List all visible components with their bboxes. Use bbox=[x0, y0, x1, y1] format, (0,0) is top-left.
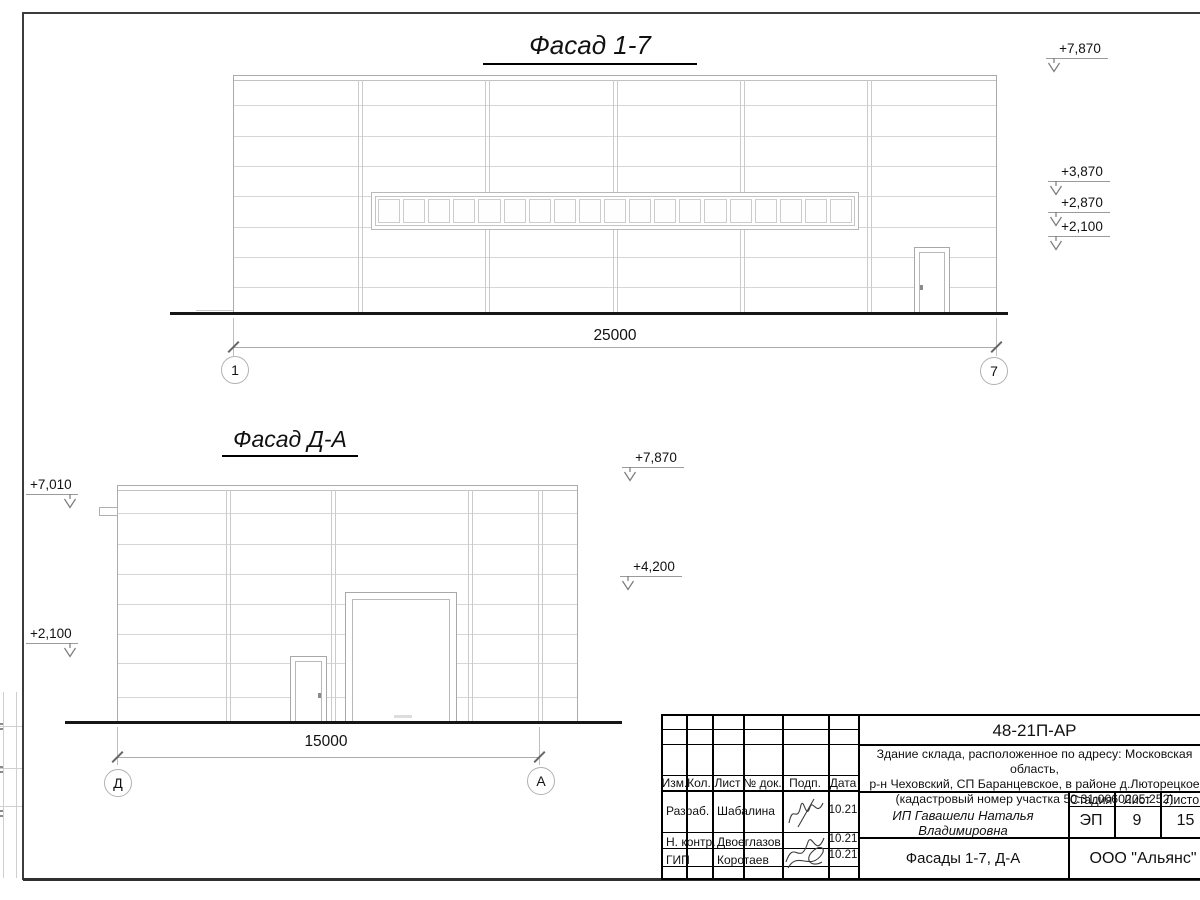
ribbon-window-frame bbox=[375, 196, 855, 226]
row-date: 10.21 bbox=[829, 849, 858, 861]
list-label: Лист bbox=[1123, 793, 1150, 807]
elevation-value: +7,870 bbox=[1046, 41, 1108, 59]
margin-text-stub bbox=[0, 728, 3, 730]
title-block-line bbox=[712, 716, 714, 878]
sheet-number: 9 bbox=[1133, 812, 1142, 830]
axis-bubble-1: 1 bbox=[221, 356, 249, 384]
window-pane bbox=[704, 199, 726, 223]
entrance-door bbox=[290, 656, 327, 722]
row-name: Коротаев bbox=[717, 853, 769, 867]
window-pane bbox=[554, 199, 576, 223]
ribbon-window bbox=[371, 192, 859, 230]
window-pane bbox=[755, 199, 777, 223]
elevation-value: +2,100 bbox=[1048, 219, 1110, 237]
stage-value: ЭП bbox=[1080, 812, 1103, 830]
row-name: Двоеглазов bbox=[717, 835, 781, 849]
extension-line bbox=[117, 727, 118, 765]
elevation-arrow-icon bbox=[63, 494, 77, 509]
gate-leaf bbox=[352, 599, 450, 721]
door-leaf bbox=[919, 252, 945, 312]
col-header-data: Дата bbox=[830, 776, 857, 790]
window-pane bbox=[529, 199, 551, 223]
column-joint bbox=[867, 80, 872, 313]
window-pane bbox=[504, 199, 526, 223]
margin-stamp-divider bbox=[0, 806, 22, 807]
title-block-line bbox=[663, 729, 858, 730]
ground-line bbox=[65, 721, 622, 724]
col-header-ndok: № док. bbox=[743, 776, 781, 790]
listov-label: Листов bbox=[1165, 793, 1200, 807]
elevation-mark: +2,100 bbox=[26, 626, 78, 644]
title-block-line bbox=[663, 744, 858, 745]
elevation-arrow-icon bbox=[63, 643, 77, 658]
extension-line bbox=[233, 318, 234, 356]
title-block: Изм. Кол. Лист № док. Подп. Дата Разраб.… bbox=[661, 714, 1200, 880]
facade-1-7-title: Фасад 1-7 bbox=[483, 30, 697, 65]
client-name: ИП Гавашели Наталья Владимировна bbox=[858, 808, 1068, 838]
window-pane bbox=[629, 199, 651, 223]
facade-1-7-building bbox=[233, 75, 997, 313]
canopy-box bbox=[99, 507, 118, 516]
margin-stamp-line bbox=[3, 692, 4, 878]
column-joint bbox=[358, 80, 363, 313]
elevation-mark: +7,870 bbox=[622, 450, 684, 468]
project-description-line1: Здание склада, расположенное по адресу: … bbox=[858, 747, 1200, 777]
window-pane bbox=[730, 199, 752, 223]
margin-stamp-line bbox=[16, 692, 17, 878]
elevation-mark: +7,010 bbox=[26, 477, 78, 495]
window-pane bbox=[453, 199, 475, 223]
door-handle bbox=[920, 285, 923, 290]
signature-scribble bbox=[784, 795, 827, 831]
axis-bubble-7: 7 bbox=[980, 357, 1008, 385]
doc-number: 48-21П-АР bbox=[858, 721, 1200, 741]
elevation-arrow-icon bbox=[623, 467, 637, 482]
row-date: 10.21 bbox=[829, 804, 858, 816]
elevation-arrow-icon bbox=[1049, 236, 1063, 251]
elevation-value: +2,100 bbox=[26, 626, 78, 644]
window-pane bbox=[830, 199, 852, 223]
elevation-arrow-icon bbox=[1049, 181, 1063, 196]
margin-text-stub bbox=[0, 723, 3, 725]
panel-line bbox=[118, 574, 577, 575]
sheets-total: 15 bbox=[1177, 812, 1195, 830]
gate bbox=[345, 592, 457, 722]
column-joint bbox=[331, 490, 336, 723]
facade-d-a-title: Фасад Д-А bbox=[222, 426, 358, 457]
panel-line bbox=[118, 544, 577, 545]
panel-line bbox=[118, 513, 577, 514]
elevation-mark: +2,100 bbox=[1048, 219, 1110, 237]
frame-top-line bbox=[23, 12, 1200, 14]
title-block-line bbox=[663, 790, 858, 792]
row-role: ГИП bbox=[666, 853, 690, 867]
signature-scribble bbox=[782, 828, 828, 872]
extension-line bbox=[539, 727, 540, 765]
entrance-door bbox=[914, 247, 950, 313]
column-joint bbox=[226, 490, 231, 723]
frame-left-line bbox=[22, 12, 24, 880]
extension-line bbox=[996, 318, 997, 356]
elevation-value: +2,870 bbox=[1048, 195, 1110, 213]
parapet-line bbox=[118, 490, 577, 491]
ground-line bbox=[170, 312, 1008, 315]
column-joint bbox=[538, 490, 543, 723]
door-handle bbox=[318, 693, 321, 698]
elevation-value: +7,010 bbox=[26, 477, 78, 495]
dimension-line bbox=[233, 347, 997, 348]
col-header-list: Лист bbox=[714, 776, 740, 790]
axis-bubble-a: А bbox=[527, 767, 555, 795]
row-name: Шабалина bbox=[717, 804, 775, 818]
window-pane bbox=[478, 199, 500, 223]
column-joint bbox=[468, 490, 473, 723]
col-header-kol: Кол. bbox=[687, 776, 711, 790]
elevation-arrow-icon bbox=[621, 576, 635, 591]
margin-text-stub bbox=[0, 771, 3, 773]
door-leaf bbox=[295, 661, 322, 721]
dimension-label: 15000 bbox=[276, 733, 376, 751]
window-pane bbox=[604, 199, 626, 223]
window-pane bbox=[428, 199, 450, 223]
drawing-sheet: { "facade_1_7": { "title": "Фасад 1-7", … bbox=[0, 0, 1200, 900]
row-date: 10.21 bbox=[829, 833, 858, 845]
col-header-izm: Изм. bbox=[662, 776, 688, 790]
axis-bubble-d: Д bbox=[104, 769, 132, 797]
elevation-mark: +3,870 bbox=[1048, 164, 1110, 182]
row-role: Н. контр. bbox=[666, 835, 716, 849]
col-header-podp: Подп. bbox=[789, 776, 821, 790]
margin-stamp-divider bbox=[0, 768, 22, 769]
elevation-mark: +4,200 bbox=[620, 559, 682, 577]
elevation-value: +3,870 bbox=[1048, 164, 1110, 182]
window-pane bbox=[654, 199, 676, 223]
gate-slot bbox=[394, 715, 412, 718]
margin-text-stub bbox=[0, 810, 3, 812]
margin-text-stub bbox=[0, 766, 3, 768]
elevation-value: +7,870 bbox=[622, 450, 684, 468]
title-block-line bbox=[858, 744, 1200, 746]
window-pane bbox=[403, 199, 425, 223]
row-role: Разраб. bbox=[666, 804, 709, 818]
dimension-line bbox=[117, 757, 540, 758]
margin-text-stub bbox=[0, 815, 3, 817]
facade-d-a-building bbox=[117, 485, 578, 723]
step-line bbox=[196, 310, 233, 311]
window-pane bbox=[378, 199, 400, 223]
elevation-arrow-icon bbox=[1047, 58, 1061, 73]
company-name: ООО "Альянс" bbox=[1090, 850, 1197, 868]
dimension-label: 25000 bbox=[565, 327, 665, 345]
window-pane bbox=[805, 199, 827, 223]
elevation-mark: +2,870 bbox=[1048, 195, 1110, 213]
project-description-line2: р-н Чеховский, СП Баранцевское, в районе… bbox=[858, 777, 1200, 792]
elevation-mark: +7,870 bbox=[1046, 41, 1108, 59]
sheet-title: Фасады 1-7, Д-А bbox=[858, 850, 1068, 867]
window-pane bbox=[579, 199, 601, 223]
elevation-value: +4,200 bbox=[620, 559, 682, 577]
window-pane bbox=[780, 199, 802, 223]
margin-stamp-divider bbox=[0, 726, 22, 727]
window-pane bbox=[679, 199, 701, 223]
stage-label: Стадия bbox=[1070, 793, 1113, 807]
